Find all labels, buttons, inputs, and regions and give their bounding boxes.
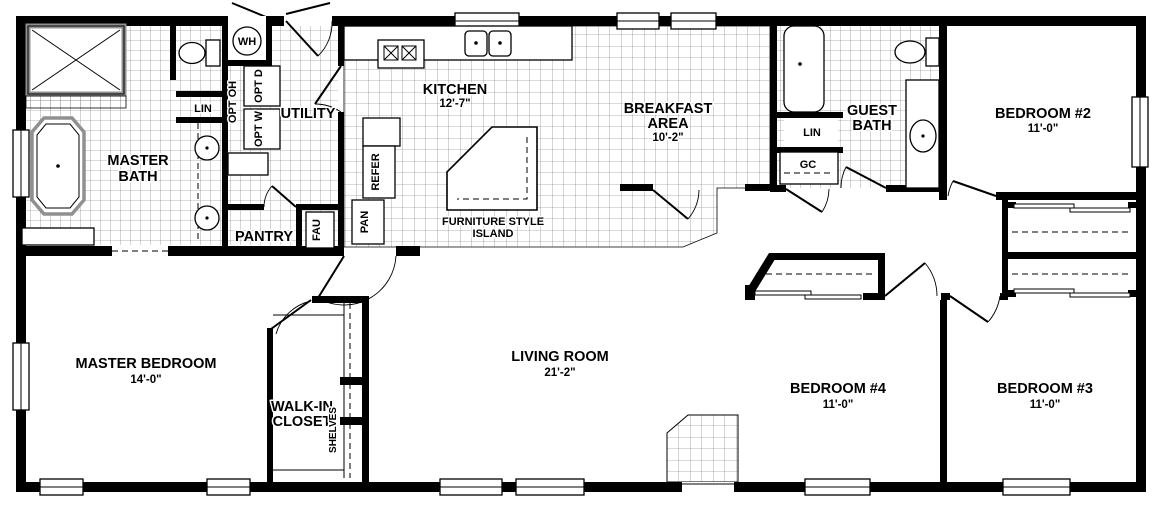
wh-exterior-door bbox=[232, 3, 266, 17]
bedroom4-label: BEDROOM #4 bbox=[790, 381, 886, 397]
walkin-label2: CLOSET bbox=[273, 414, 332, 430]
guest-vanity bbox=[906, 80, 939, 188]
guest-bath-label1: GUEST bbox=[847, 103, 897, 119]
fau-label: FAU bbox=[311, 219, 323, 241]
water-heater-label: WH bbox=[238, 36, 256, 48]
entry-tile-pad bbox=[667, 415, 738, 482]
master-toilet bbox=[179, 40, 220, 66]
bedroom4-door bbox=[885, 263, 937, 296]
kitchen-dim: 12'-7" bbox=[439, 98, 470, 110]
entry-door-threshold bbox=[682, 482, 734, 492]
utility-label: UTILITY bbox=[281, 106, 336, 122]
kitchen-cabinet bbox=[363, 118, 400, 146]
utility-exterior-door-out bbox=[286, 3, 330, 14]
bedroom3-closet-slider bbox=[1014, 289, 1074, 293]
bedroom2-door bbox=[948, 181, 996, 196]
bedroom4-closet-slider bbox=[755, 291, 811, 295]
window-bedroom3 bbox=[1003, 479, 1070, 495]
bedroom2-closet-slider bbox=[1070, 208, 1130, 212]
bedroom3-dim: 11'-0" bbox=[1030, 399, 1061, 411]
bedroom2-dim: 11'-0" bbox=[1028, 123, 1059, 135]
floor-plan: MASTER BATH LIN WH OPT OH OPT D OPT W UT… bbox=[0, 0, 1161, 508]
gc-door bbox=[786, 189, 829, 212]
living-room-dim: 21'-2" bbox=[544, 367, 575, 379]
bedroom4-closet-slider bbox=[805, 295, 861, 299]
window-bedroom4 bbox=[805, 479, 870, 495]
bedroom2-label: BEDROOM #2 bbox=[995, 106, 1091, 122]
window-master-bath bbox=[13, 130, 29, 197]
shelves-label: SHELVES bbox=[328, 407, 339, 453]
opt-d-label: OPT D bbox=[253, 69, 265, 103]
window-master-bedroom-left bbox=[13, 343, 29, 410]
window-living-2 bbox=[516, 479, 584, 495]
master-bath-label2: BATH bbox=[118, 169, 157, 185]
island-label2: ISLAND bbox=[473, 228, 514, 240]
opt-counter-box bbox=[228, 153, 268, 175]
walkin-shelves bbox=[273, 303, 363, 478]
walkin-closet-door bbox=[271, 300, 311, 334]
guest-bath-label2: BATH bbox=[852, 118, 891, 134]
bedroom4-dim: 11'-0" bbox=[823, 399, 854, 411]
walkin-label1: WALK-IN bbox=[271, 399, 333, 415]
tub-step bbox=[22, 228, 94, 245]
master-linen-label: LIN bbox=[194, 103, 212, 115]
window-breakfast-2 bbox=[671, 13, 716, 29]
master-bedroom-label: MASTER BEDROOM bbox=[76, 356, 217, 372]
opt-w-label: OPT W bbox=[253, 110, 265, 147]
range bbox=[378, 40, 424, 68]
breakfast-label1: BREAKFAST bbox=[624, 101, 713, 117]
island-label1: FURNITURE STYLE bbox=[442, 216, 544, 228]
breakfast-label2: AREA bbox=[647, 116, 689, 132]
bedroom3-door bbox=[950, 296, 1000, 322]
bedroom2-closet-slider bbox=[1014, 204, 1074, 208]
breakfast-dim: 10'-2" bbox=[652, 132, 683, 144]
guest-linen-label: LIN bbox=[803, 127, 821, 139]
living-room-label: LIVING ROOM bbox=[511, 349, 608, 365]
window-bedroom2 bbox=[1132, 97, 1148, 167]
bedroom3-label: BEDROOM #3 bbox=[997, 381, 1093, 397]
shower bbox=[26, 26, 126, 108]
window-master-bedroom-bottom-1 bbox=[40, 479, 83, 495]
garden-tub bbox=[32, 118, 84, 214]
utility-door-gap bbox=[284, 16, 332, 26]
guest-tub bbox=[784, 26, 824, 112]
window-master-bedroom-bottom-2 bbox=[207, 479, 250, 495]
opt-oh-label: OPT OH bbox=[227, 81, 239, 123]
window-living-1 bbox=[440, 479, 502, 495]
kitchen-label: KITCHEN bbox=[423, 82, 487, 98]
bedroom3-closet-slider bbox=[1070, 293, 1130, 297]
refer-label: REFER bbox=[370, 153, 382, 190]
guest-toilet bbox=[895, 38, 939, 66]
window-breakfast-1 bbox=[617, 13, 659, 29]
floor-plan-svg: MASTER BATH LIN WH OPT OH OPT D OPT W UT… bbox=[0, 0, 1161, 508]
master-bath-label: MASTER bbox=[107, 153, 169, 169]
pantry-label: PANTRY bbox=[235, 229, 293, 245]
master-bedroom-dim: 14'-0" bbox=[130, 374, 161, 386]
gc-label: GC bbox=[800, 159, 817, 171]
pan-label: PAN bbox=[359, 211, 371, 233]
